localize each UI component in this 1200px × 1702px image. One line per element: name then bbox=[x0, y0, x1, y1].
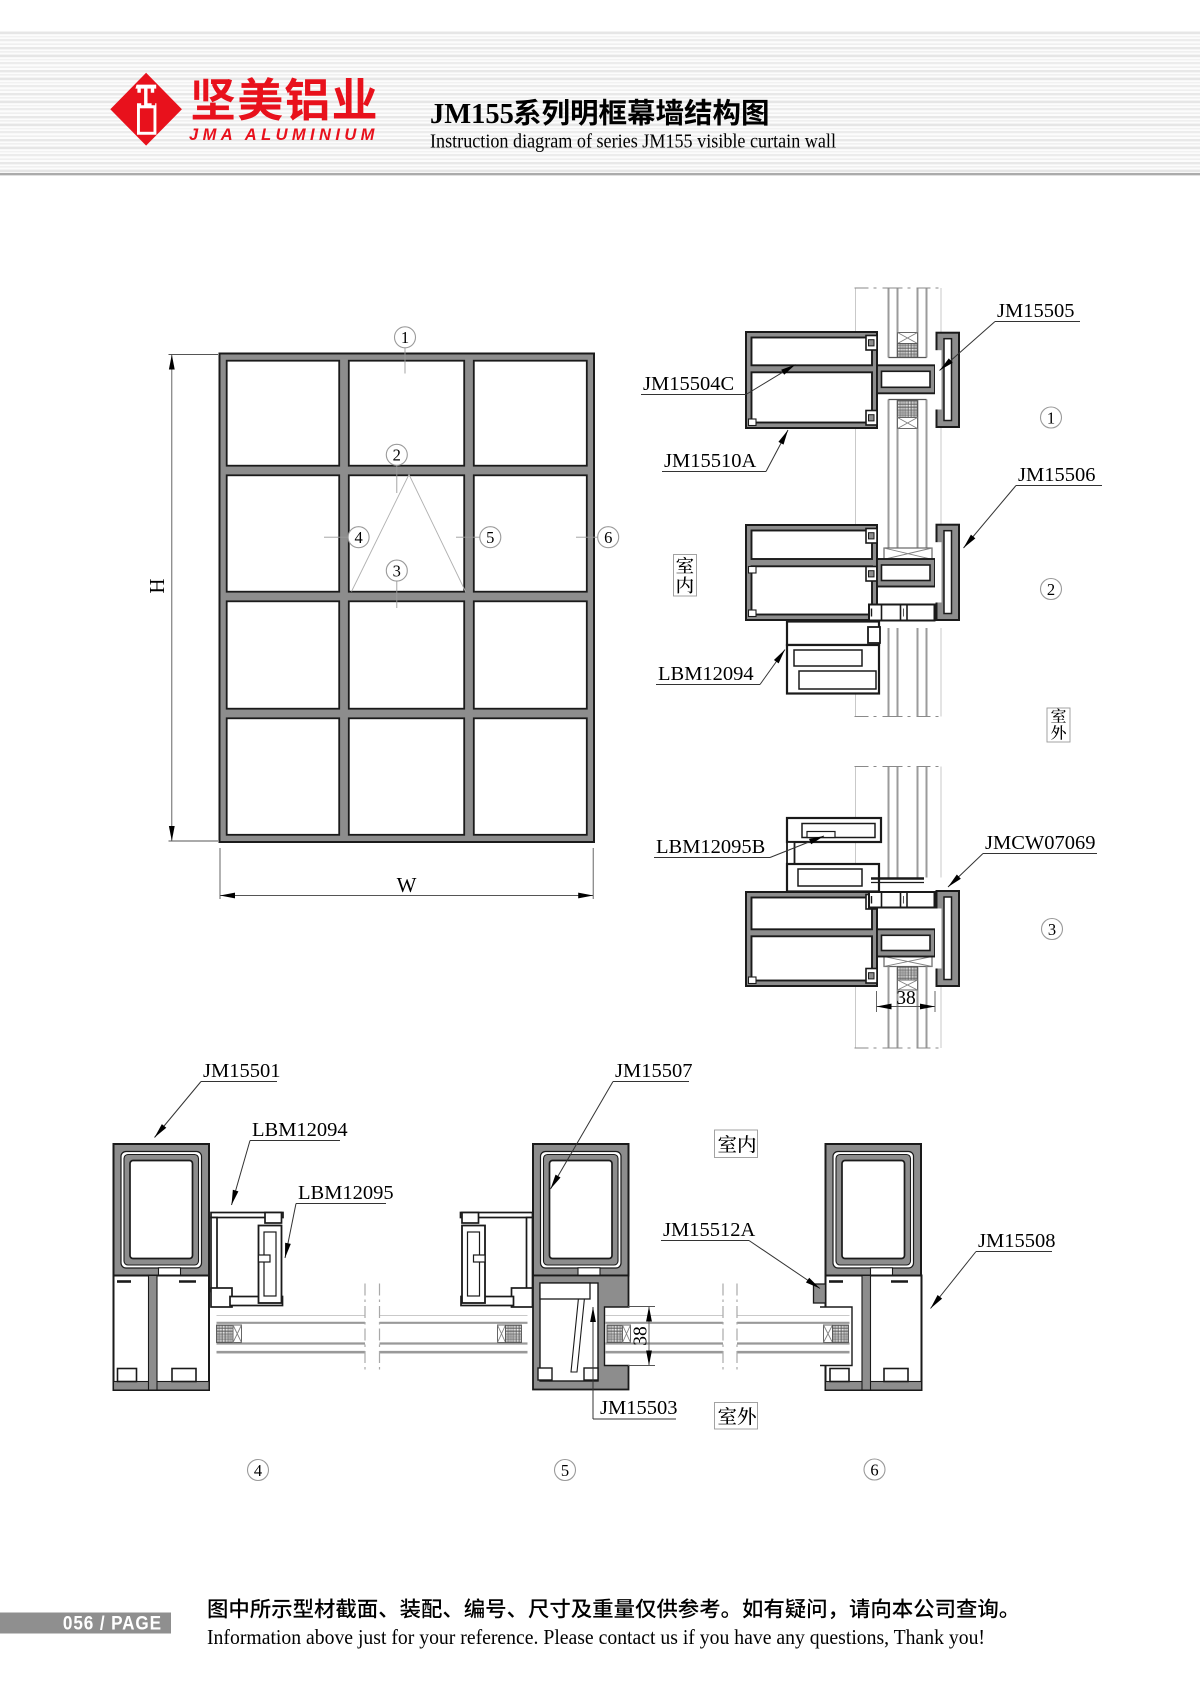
svg-text:4: 4 bbox=[254, 1461, 262, 1480]
svg-text:Information above just for you: Information above just for your referenc… bbox=[207, 1625, 985, 1649]
svg-text:5: 5 bbox=[486, 528, 494, 547]
svg-text:JM15510A: JM15510A bbox=[664, 450, 756, 472]
svg-text:38: 38 bbox=[896, 988, 916, 1009]
svg-text:JM15503: JM15503 bbox=[600, 1397, 677, 1419]
svg-text:3: 3 bbox=[393, 562, 401, 581]
svg-text:056 / PAGE: 056 / PAGE bbox=[63, 1611, 162, 1633]
svg-text:1: 1 bbox=[401, 328, 409, 347]
svg-text:6: 6 bbox=[604, 528, 612, 547]
svg-text:W: W bbox=[397, 873, 417, 897]
svg-text:JM15501: JM15501 bbox=[203, 1060, 280, 1082]
svg-text:JM155: JM155 bbox=[430, 99, 514, 130]
svg-text:Instruction diagram of series: Instruction diagram of series JM155 visi… bbox=[430, 131, 836, 153]
svg-text:JM15506: JM15506 bbox=[1018, 464, 1095, 486]
svg-text:2: 2 bbox=[1047, 580, 1055, 599]
svg-text:JM15507: JM15507 bbox=[615, 1060, 692, 1082]
svg-text:JM15508: JM15508 bbox=[978, 1230, 1055, 1252]
svg-text:6: 6 bbox=[870, 1460, 878, 1479]
svg-text:LBM12095: LBM12095 bbox=[298, 1182, 394, 1204]
svg-text:JM15512A: JM15512A bbox=[663, 1219, 755, 1241]
svg-text:2: 2 bbox=[393, 446, 401, 465]
svg-text:JMA ALUMINIUM: JMA ALUMINIUM bbox=[189, 126, 377, 144]
svg-text:JMCW07069: JMCW07069 bbox=[985, 832, 1095, 854]
svg-text:38: 38 bbox=[631, 1326, 652, 1346]
svg-text:LBM12094: LBM12094 bbox=[252, 1119, 348, 1141]
svg-text:LBM12095B: LBM12095B bbox=[656, 836, 765, 858]
svg-text:JM15504C: JM15504C bbox=[643, 373, 734, 395]
svg-text:H: H bbox=[145, 578, 169, 593]
svg-text:JM15505: JM15505 bbox=[997, 300, 1074, 322]
svg-text:LBM12094: LBM12094 bbox=[658, 663, 754, 685]
svg-text:1: 1 bbox=[1047, 408, 1055, 427]
svg-text:3: 3 bbox=[1048, 920, 1056, 939]
svg-text:5: 5 bbox=[561, 1461, 569, 1480]
svg-text:4: 4 bbox=[354, 528, 362, 547]
